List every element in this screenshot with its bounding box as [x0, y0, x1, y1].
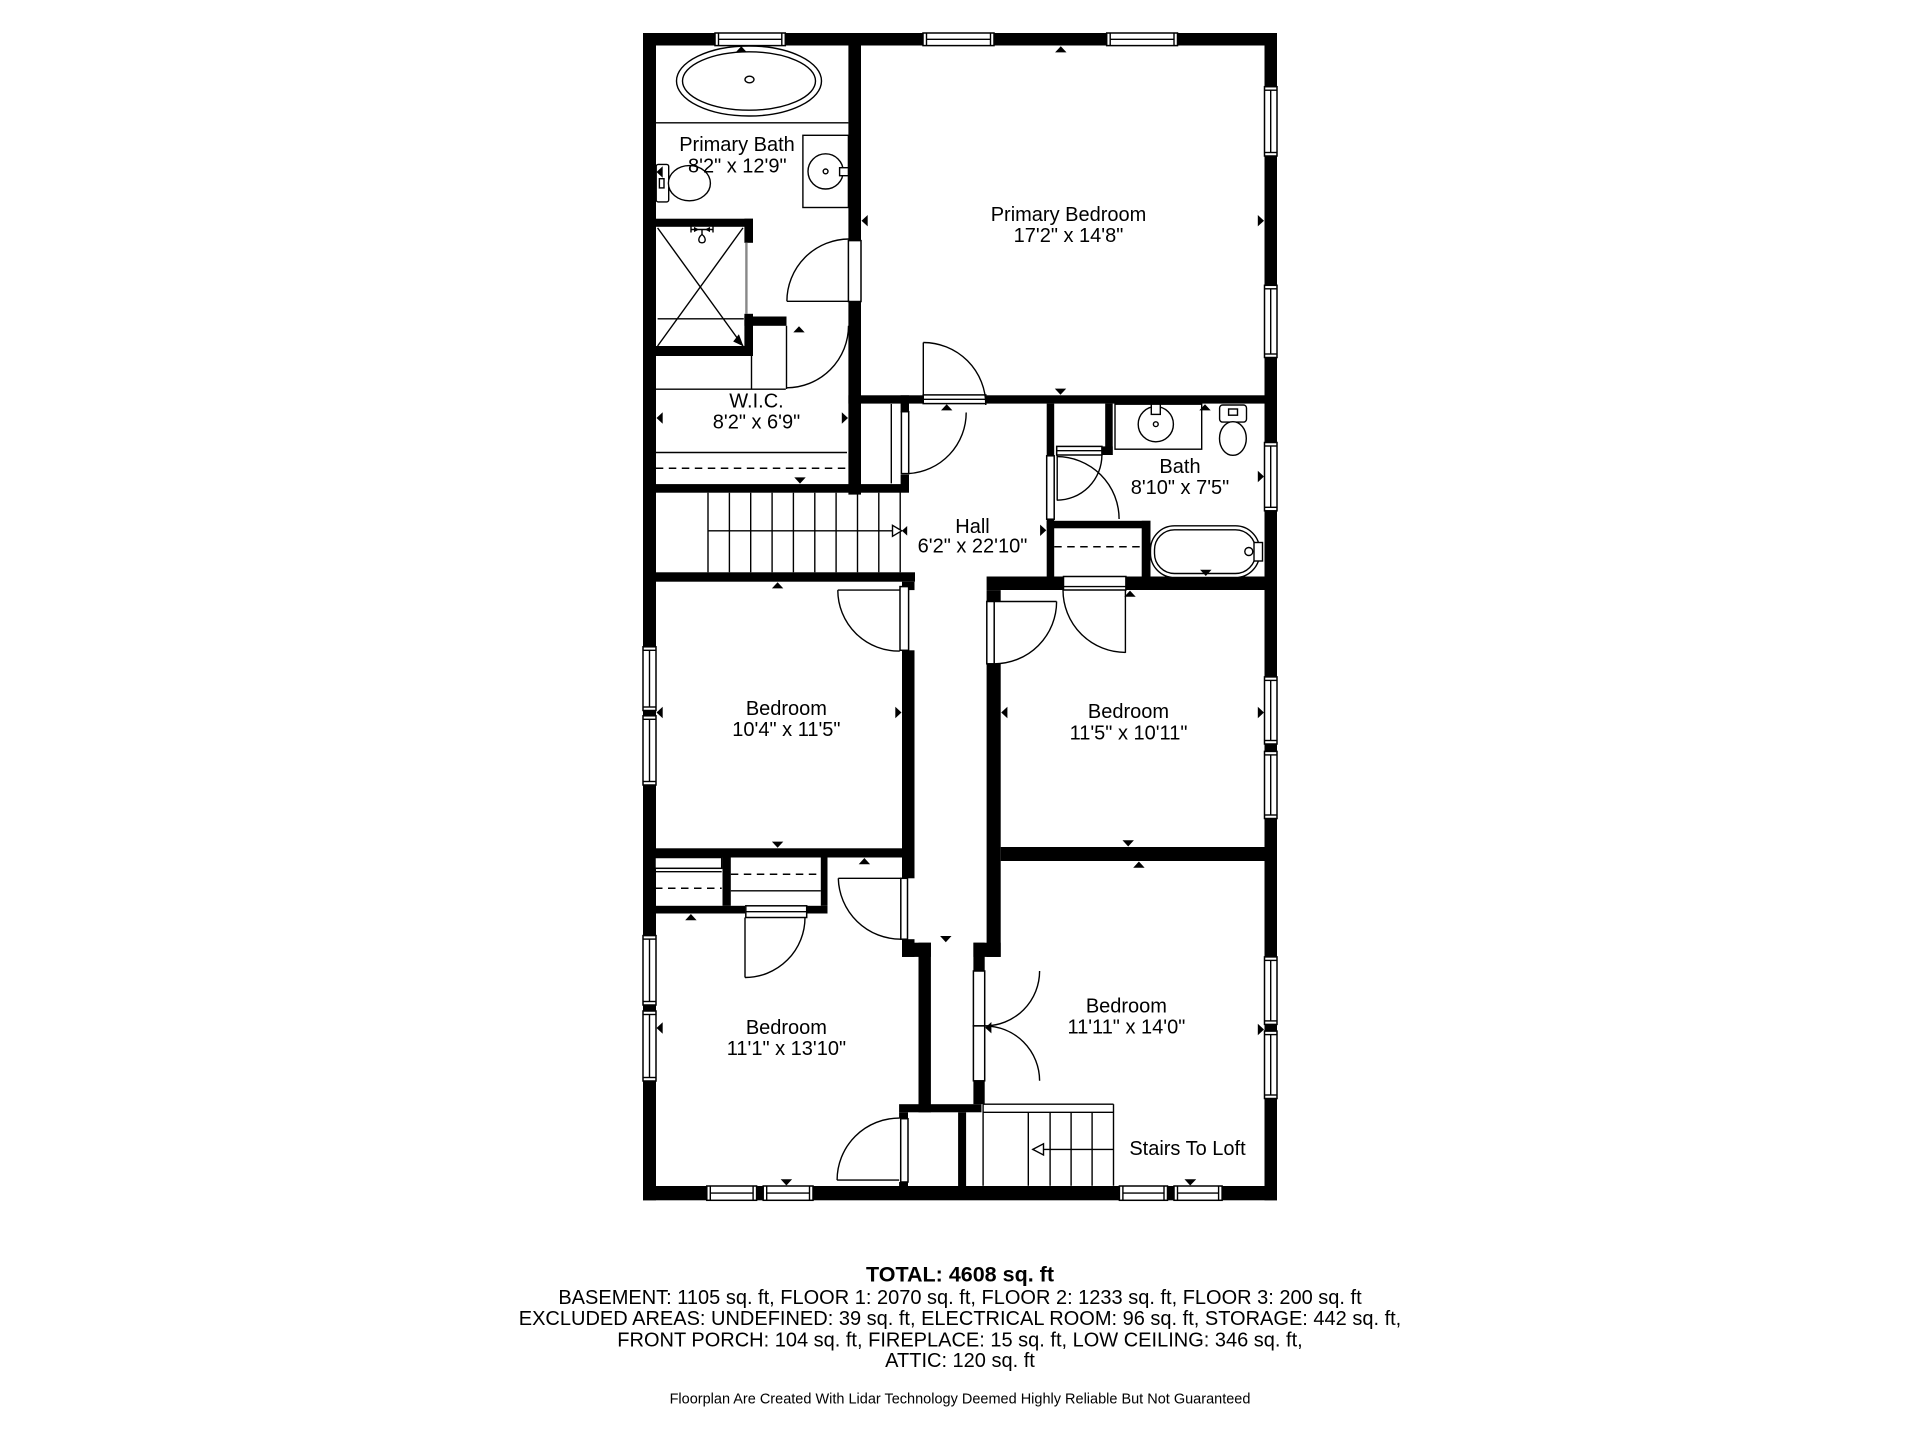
svg-text:8'2" x 12'9": 8'2" x 12'9": [688, 155, 787, 177]
svg-text:ATTIC: 120 sq. ft: ATTIC: 120 sq. ft: [885, 1350, 1035, 1372]
svg-text:Bedroom: Bedroom: [1088, 701, 1169, 723]
svg-text:10'4" x 11'5": 10'4" x 11'5": [732, 719, 840, 741]
svg-text:17'2" x 14'8": 17'2" x 14'8": [1014, 225, 1124, 247]
svg-text:8'10" x 7'5": 8'10" x 7'5": [1131, 477, 1230, 499]
svg-text:FRONT PORCH: 104 sq. ft, FIREP: FRONT PORCH: 104 sq. ft, FIREPLACE: 15 s…: [617, 1330, 1302, 1352]
svg-text:8'2" x 6'9": 8'2" x 6'9": [713, 412, 800, 434]
svg-text:W.I.C.: W.I.C.: [729, 391, 783, 413]
svg-text:11'1" x 13'10": 11'1" x 13'10": [727, 1038, 846, 1060]
svg-text:Bath: Bath: [1159, 456, 1200, 478]
svg-text:BASEMENT: 1105 sq. ft, FLOOR 1: BASEMENT: 1105 sq. ft, FLOOR 1: 2070 sq.…: [558, 1287, 1362, 1309]
svg-text:11'11" x 14'0": 11'11" x 14'0": [1067, 1017, 1185, 1039]
svg-text:Primary Bath: Primary Bath: [679, 134, 795, 156]
svg-text:TOTAL: 4608 sq. ft: TOTAL: 4608 sq. ft: [866, 1263, 1054, 1287]
svg-text:Primary Bedroom: Primary Bedroom: [991, 204, 1147, 226]
svg-text:11'5" x 10'11": 11'5" x 10'11": [1070, 723, 1188, 745]
svg-text:Floorplan Are Created With Lid: Floorplan Are Created With Lidar Technol…: [670, 1392, 1251, 1408]
svg-text:Bedroom: Bedroom: [746, 1017, 827, 1039]
svg-text:Stairs To Loft: Stairs To Loft: [1129, 1138, 1246, 1160]
svg-text:Bedroom: Bedroom: [1086, 996, 1167, 1018]
svg-text:EXCLUDED AREAS: UNDEFINED: 39: EXCLUDED AREAS: UNDEFINED: 39 sq. ft, EL…: [519, 1308, 1402, 1330]
svg-text:6'2" x 22'10": 6'2" x 22'10": [918, 536, 1028, 558]
svg-text:Bedroom: Bedroom: [746, 698, 827, 720]
